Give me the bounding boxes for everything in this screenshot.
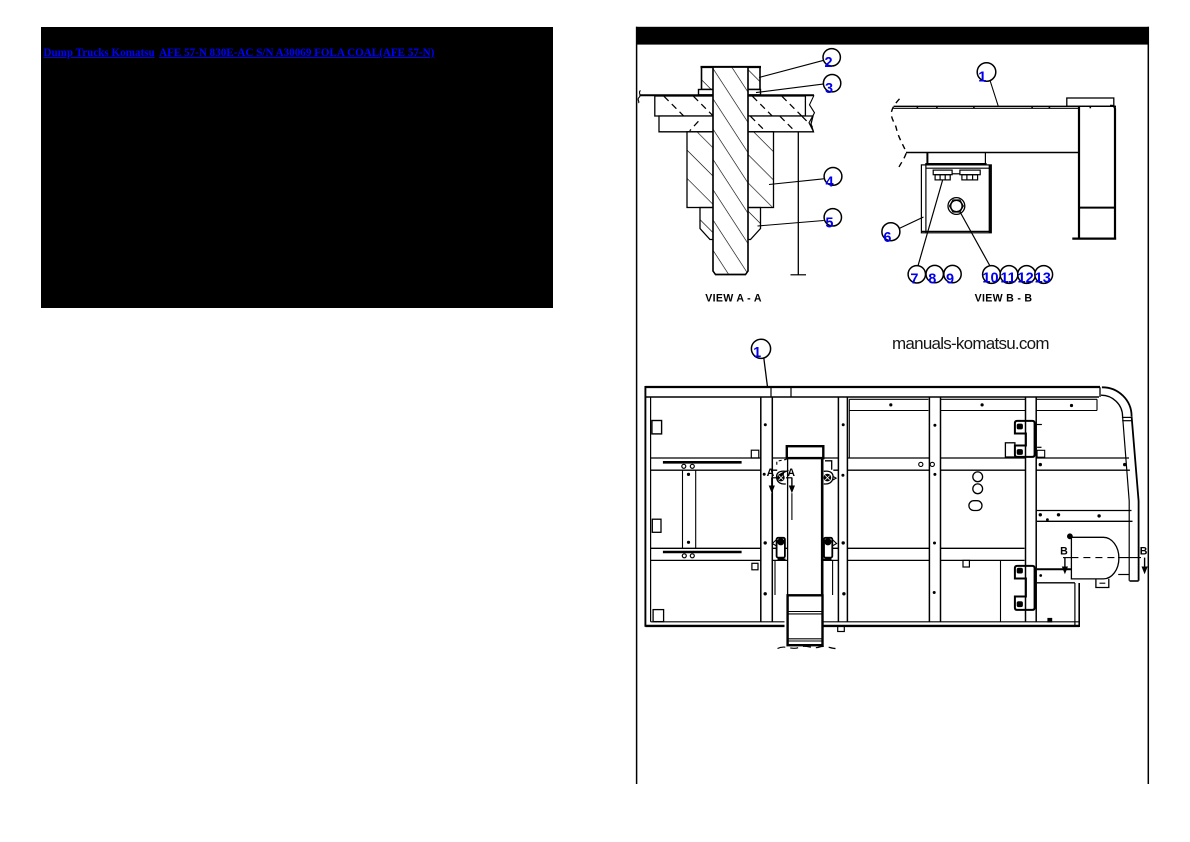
svg-text:1: 1: [978, 70, 986, 86]
svg-text:3: 3: [825, 81, 833, 97]
svg-text:2: 2: [825, 55, 833, 71]
svg-text:11: 11: [1000, 270, 1015, 286]
svg-text:1: 1: [753, 345, 761, 361]
svg-text:4: 4: [826, 174, 834, 190]
svg-text:VIEW B - B: VIEW B - B: [975, 293, 1033, 305]
svg-text:B: B: [1140, 546, 1148, 558]
svg-text:12: 12: [1018, 270, 1034, 286]
svg-text:10: 10: [982, 270, 998, 286]
svg-text:7: 7: [910, 272, 918, 288]
svg-text:B: B: [1060, 546, 1068, 558]
svg-text:5: 5: [825, 215, 833, 231]
svg-text:9: 9: [946, 271, 954, 287]
svg-text:VIEW A - A: VIEW A - A: [705, 293, 762, 305]
svg-text:6: 6: [883, 230, 891, 246]
svg-text:A: A: [767, 467, 775, 479]
svg-text:A: A: [787, 467, 795, 479]
svg-text:13: 13: [1035, 270, 1051, 286]
svg-text:8: 8: [928, 271, 936, 287]
